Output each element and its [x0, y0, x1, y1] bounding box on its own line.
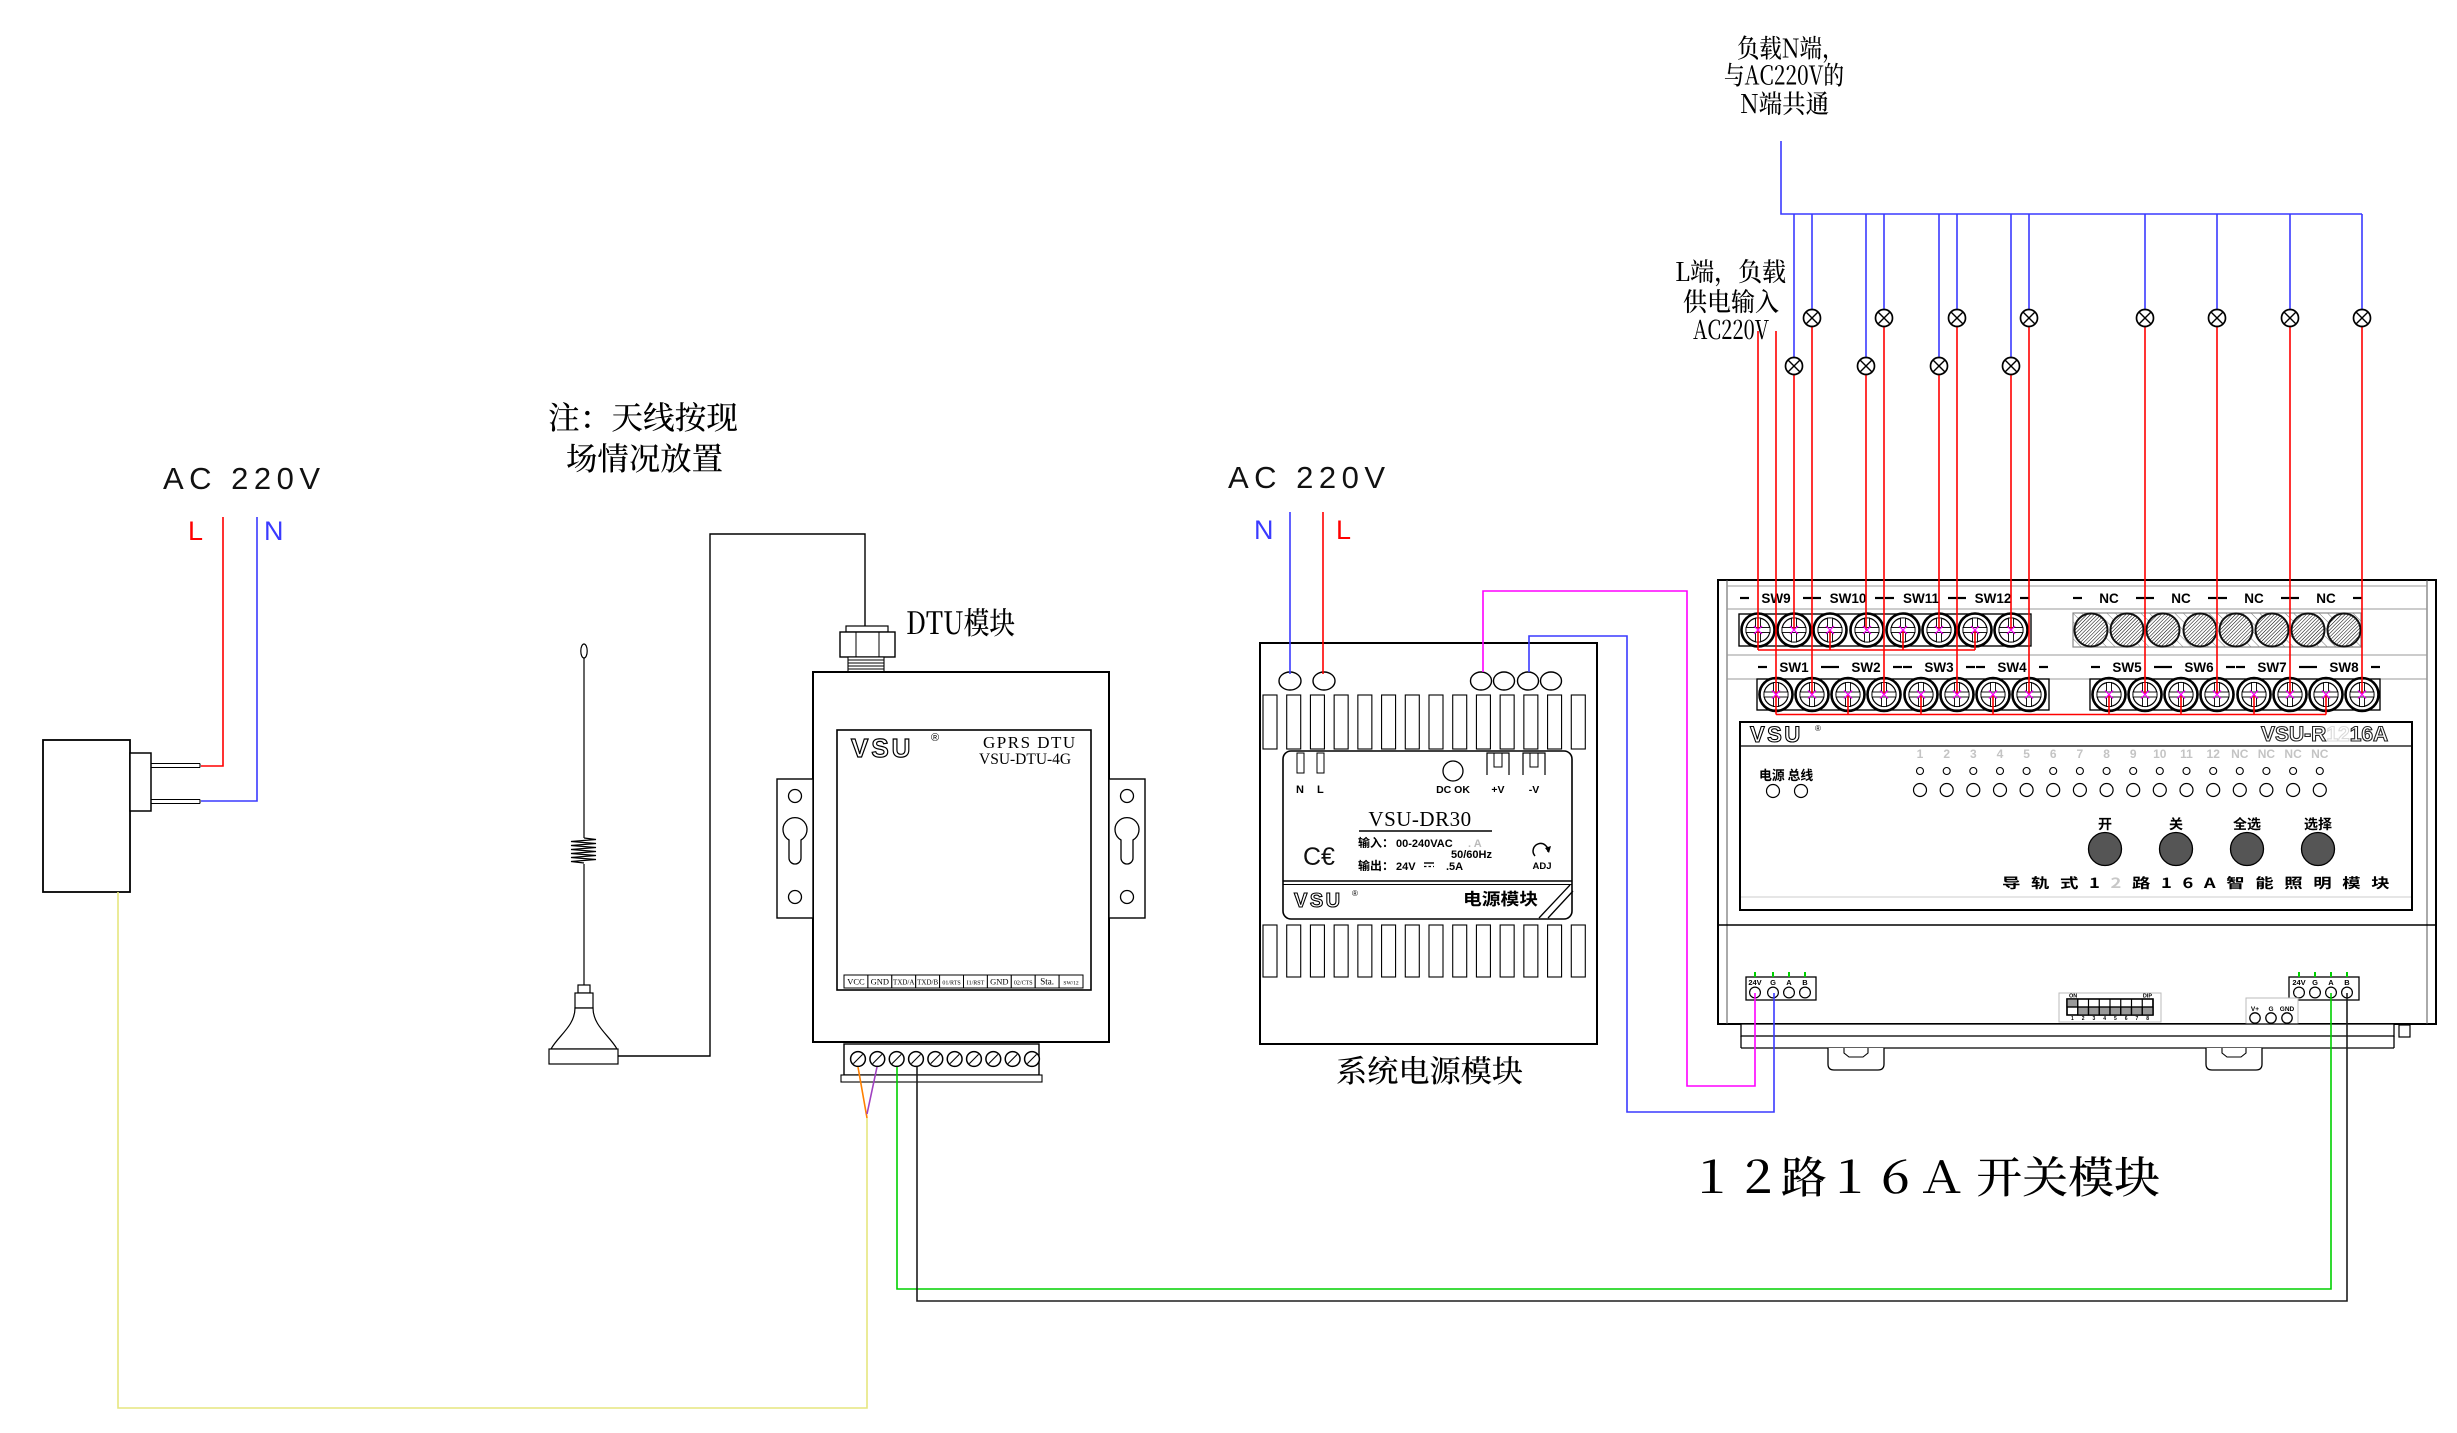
svg-text:ADJ: ADJ — [1532, 861, 1551, 872]
svg-text:NC: NC — [2284, 747, 2302, 761]
svg-text:SW5: SW5 — [2112, 660, 2142, 675]
svg-text:N: N — [264, 516, 284, 546]
svg-text:A: A — [1786, 978, 1792, 987]
svg-text:1: 1 — [1917, 747, 1924, 761]
svg-text:SW12: SW12 — [1975, 591, 2012, 606]
svg-text:24V: 24V — [1748, 978, 1761, 987]
svg-text:24V: 24V — [2292, 978, 2305, 987]
svg-text:NC: NC — [2099, 591, 2119, 606]
svg-text:N: N — [1296, 784, 1304, 796]
svg-text:GND: GND — [2280, 1006, 2295, 1013]
svg-text:11: 11 — [2180, 747, 2193, 761]
svg-text:00-240VAC: 00-240VAC — [1396, 838, 1453, 850]
svg-text:8: 8 — [2103, 747, 2110, 761]
svg-text:SW3: SW3 — [1924, 660, 1954, 675]
svg-text:12: 12 — [2207, 747, 2221, 761]
svg-text:7: 7 — [2077, 747, 2084, 761]
svg-text:NC: NC — [2244, 591, 2264, 606]
svg-text:+V: +V — [1491, 784, 1504, 796]
svg-text:SW7: SW7 — [2257, 660, 2286, 675]
svg-text:VSU: VSU — [851, 733, 913, 763]
svg-text:2: 2 — [2082, 1016, 2085, 1022]
svg-text:SW11: SW11 — [1903, 591, 1940, 606]
svg-text:L: L — [1336, 515, 1351, 545]
svg-text:24V: 24V — [1396, 861, 1416, 873]
svg-text:NC: NC — [2258, 747, 2276, 761]
svg-text:GPRS DTU: GPRS DTU — [983, 733, 1077, 752]
svg-text:V+: V+ — [2251, 1006, 2259, 1013]
svg-text:®: ® — [1815, 724, 1821, 733]
svg-text:7: 7 — [2136, 1016, 2139, 1022]
svg-text:€: € — [1321, 843, 1335, 871]
svg-text:G: G — [1770, 978, 1776, 987]
svg-text:VSU-R1216A: VSU-R1216A — [2261, 723, 2388, 746]
svg-text:01/RTS: 01/RTS — [942, 981, 960, 987]
svg-text:VSU: VSU — [1750, 722, 1803, 747]
svg-text:-V: -V — [1529, 784, 1540, 796]
svg-text:SW/12: SW/12 — [1063, 981, 1079, 987]
svg-text:VCC: VCC — [847, 977, 865, 987]
svg-text:®: ® — [931, 732, 939, 744]
svg-text:L: L — [1317, 784, 1324, 796]
svg-text:6: 6 — [2050, 747, 2057, 761]
svg-text:SW4: SW4 — [1997, 660, 2027, 675]
svg-text:C: C — [1303, 843, 1321, 871]
svg-text:NC: NC — [2231, 747, 2249, 761]
svg-text:4: 4 — [1997, 747, 2004, 761]
svg-text:A: A — [2328, 978, 2334, 987]
svg-text:AC 220V: AC 220V — [1228, 460, 1391, 495]
svg-text:TXD/B: TXD/B — [917, 979, 938, 987]
svg-text:GND: GND — [871, 977, 889, 987]
svg-text:®: ® — [1352, 889, 1358, 898]
svg-text:I1/RST: I1/RST — [967, 981, 985, 987]
svg-text:G: G — [2268, 1006, 2273, 1013]
svg-text:VSU: VSU — [1294, 890, 1343, 912]
svg-text:10: 10 — [2153, 747, 2167, 761]
svg-text:SW1: SW1 — [1779, 660, 1809, 675]
svg-text:N: N — [1254, 515, 1274, 545]
svg-text:SW6: SW6 — [2184, 660, 2214, 675]
svg-text:GND: GND — [990, 977, 1008, 987]
svg-text:5: 5 — [2114, 1016, 2117, 1022]
svg-text:L: L — [188, 516, 203, 546]
svg-text:Sta.: Sta. — [1040, 977, 1054, 987]
svg-text:VSU-DTU-4G: VSU-DTU-4G — [979, 751, 1071, 768]
svg-text:VSU-DR30: VSU-DR30 — [1368, 807, 1471, 831]
svg-text:AC 220V: AC 220V — [163, 461, 326, 496]
svg-text:SW8: SW8 — [2329, 660, 2359, 675]
svg-text:SW10: SW10 — [1830, 591, 1867, 606]
svg-text:2: 2 — [1943, 747, 1950, 761]
svg-text:3: 3 — [2093, 1016, 2096, 1022]
svg-text:SW2: SW2 — [1851, 660, 1880, 675]
svg-text:B: B — [1802, 978, 1808, 987]
svg-text:NC: NC — [2316, 591, 2336, 606]
svg-text:TXD/A: TXD/A — [893, 979, 914, 987]
svg-text:ON: ON — [2069, 994, 2077, 1000]
svg-text:3: 3 — [1970, 747, 1977, 761]
svg-text:4: 4 — [2103, 1016, 2106, 1022]
svg-text:6: 6 — [2125, 1016, 2128, 1022]
svg-text:NC: NC — [2171, 591, 2191, 606]
svg-text:8: 8 — [2146, 1016, 2149, 1022]
svg-text:9: 9 — [2130, 747, 2137, 761]
svg-text:02/CTS: 02/CTS — [1014, 981, 1033, 987]
svg-text:B: B — [2344, 978, 2350, 987]
svg-text:.5A: .5A — [1446, 861, 1463, 873]
svg-text:DC OK: DC OK — [1436, 784, 1470, 796]
svg-text:1: 1 — [2071, 1016, 2074, 1022]
svg-text:DIP: DIP — [2143, 994, 2153, 1000]
svg-text:NC: NC — [2311, 747, 2329, 761]
svg-text:50/60Hz: 50/60Hz — [1451, 849, 1492, 861]
svg-text:G: G — [2312, 978, 2318, 987]
svg-text:5: 5 — [2023, 747, 2030, 761]
